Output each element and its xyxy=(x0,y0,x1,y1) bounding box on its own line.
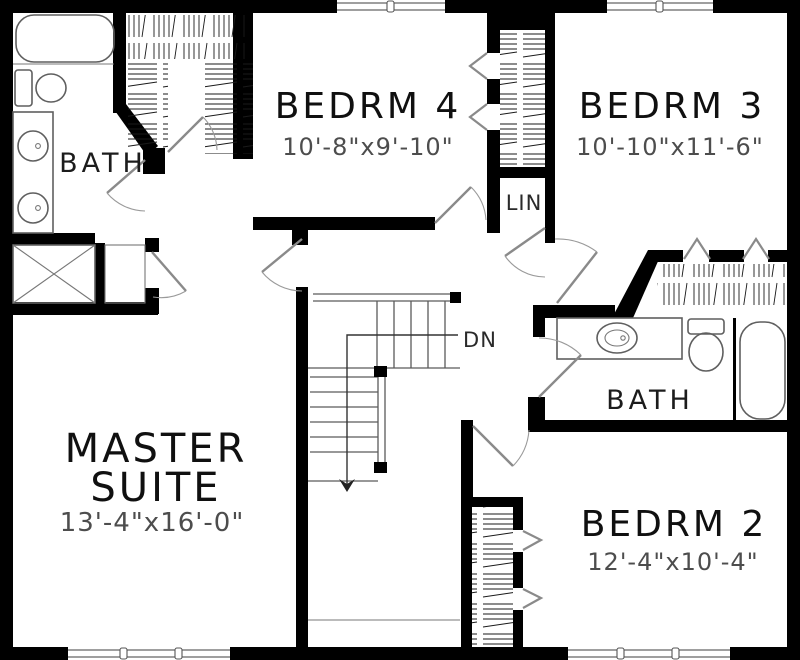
stairs-dn-label: DN xyxy=(463,328,497,352)
linen-label: LIN xyxy=(506,191,543,215)
bath-right-label: BATH xyxy=(606,385,694,416)
walkin-closet-hatch-right xyxy=(205,62,253,154)
bedrm4-closet-hatch xyxy=(500,32,545,165)
walkin-closet-hatch-left xyxy=(128,62,168,152)
bedrm3-closet-hatch xyxy=(657,264,787,305)
floor-plan: BATH BEDRM 4 10'-8"x9'-10" BEDRM 3 10'-1… xyxy=(0,0,800,660)
bedrm2-dimensions: 12'-4"x10'-4" xyxy=(587,548,758,576)
bedrm2-label: BEDRM 2 xyxy=(581,504,768,545)
bedrm3-label: BEDRM 3 xyxy=(579,86,766,127)
bath-left-label: BATH xyxy=(59,148,147,179)
walkin-closet-hatch-top xyxy=(128,15,245,59)
master-dimensions: 13'-4"x16'-0" xyxy=(60,508,245,538)
bedrm4-label: BEDRM 4 xyxy=(275,86,462,127)
bedrm4-dimensions: 10'-8"x9'-10" xyxy=(282,133,453,161)
bedrm2-closet-hatch xyxy=(472,507,513,645)
master-label-line2: SUITE xyxy=(90,465,221,511)
floor-plan-svg: BATH BEDRM 4 10'-8"x9'-10" BEDRM 3 10'-1… xyxy=(0,0,800,660)
bedrm3-dimensions: 10'-10"x11'-6" xyxy=(576,133,764,161)
